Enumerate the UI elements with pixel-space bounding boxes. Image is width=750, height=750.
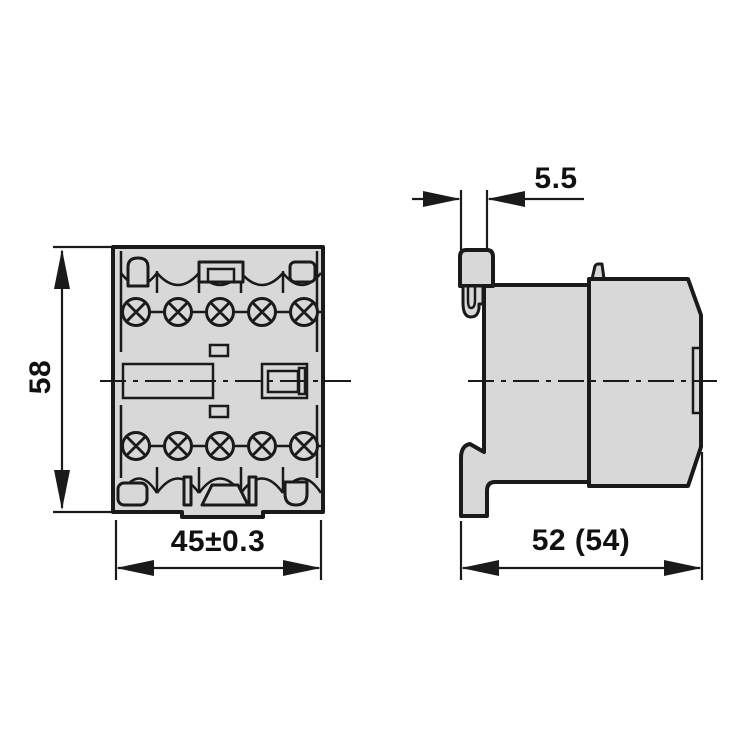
width-dimension-label: 45±0.3: [171, 525, 266, 559]
bottom-slot-bar-left: [184, 477, 191, 505]
height-dimension-label: 58: [24, 360, 58, 394]
side-view: [460, 250, 717, 516]
lug-width-dimension-label: 5.5: [534, 162, 577, 196]
lug-width-dimension: [412, 190, 584, 250]
technical-drawing: 58 45±0.3 5.5 52 (54): [0, 0, 750, 750]
top-arch-detail: [128, 258, 148, 286]
bottom-slot-bar-right: [249, 477, 256, 505]
arrow-right-icon: [423, 191, 461, 207]
top-right-pad: [290, 262, 315, 282]
snap-clip: [463, 286, 483, 317]
top-center-block: [199, 262, 243, 282]
height-dimension: [53, 247, 113, 512]
arrow-right-icon: [283, 560, 321, 576]
arrow-left-icon: [116, 560, 154, 576]
drawing-geometry: [0, 0, 750, 750]
mounting-lug: [460, 250, 493, 286]
arrow-left-icon: [461, 560, 499, 576]
arrow-right-icon: [664, 560, 702, 576]
side-terminal-section: [461, 285, 589, 516]
housing-top-tab: [592, 264, 604, 279]
bottom-right-pocket: [285, 482, 307, 505]
depth-dimension-label: 52 (54): [532, 524, 631, 558]
front-view: [100, 247, 352, 517]
arrow-left-icon: [487, 191, 525, 207]
bottom-center-wedge: [202, 485, 248, 505]
bottom-left-pad: [118, 483, 147, 505]
arrow-up-icon: [54, 249, 70, 289]
side-housing-block: [589, 279, 701, 486]
arrow-down-icon: [54, 470, 70, 510]
